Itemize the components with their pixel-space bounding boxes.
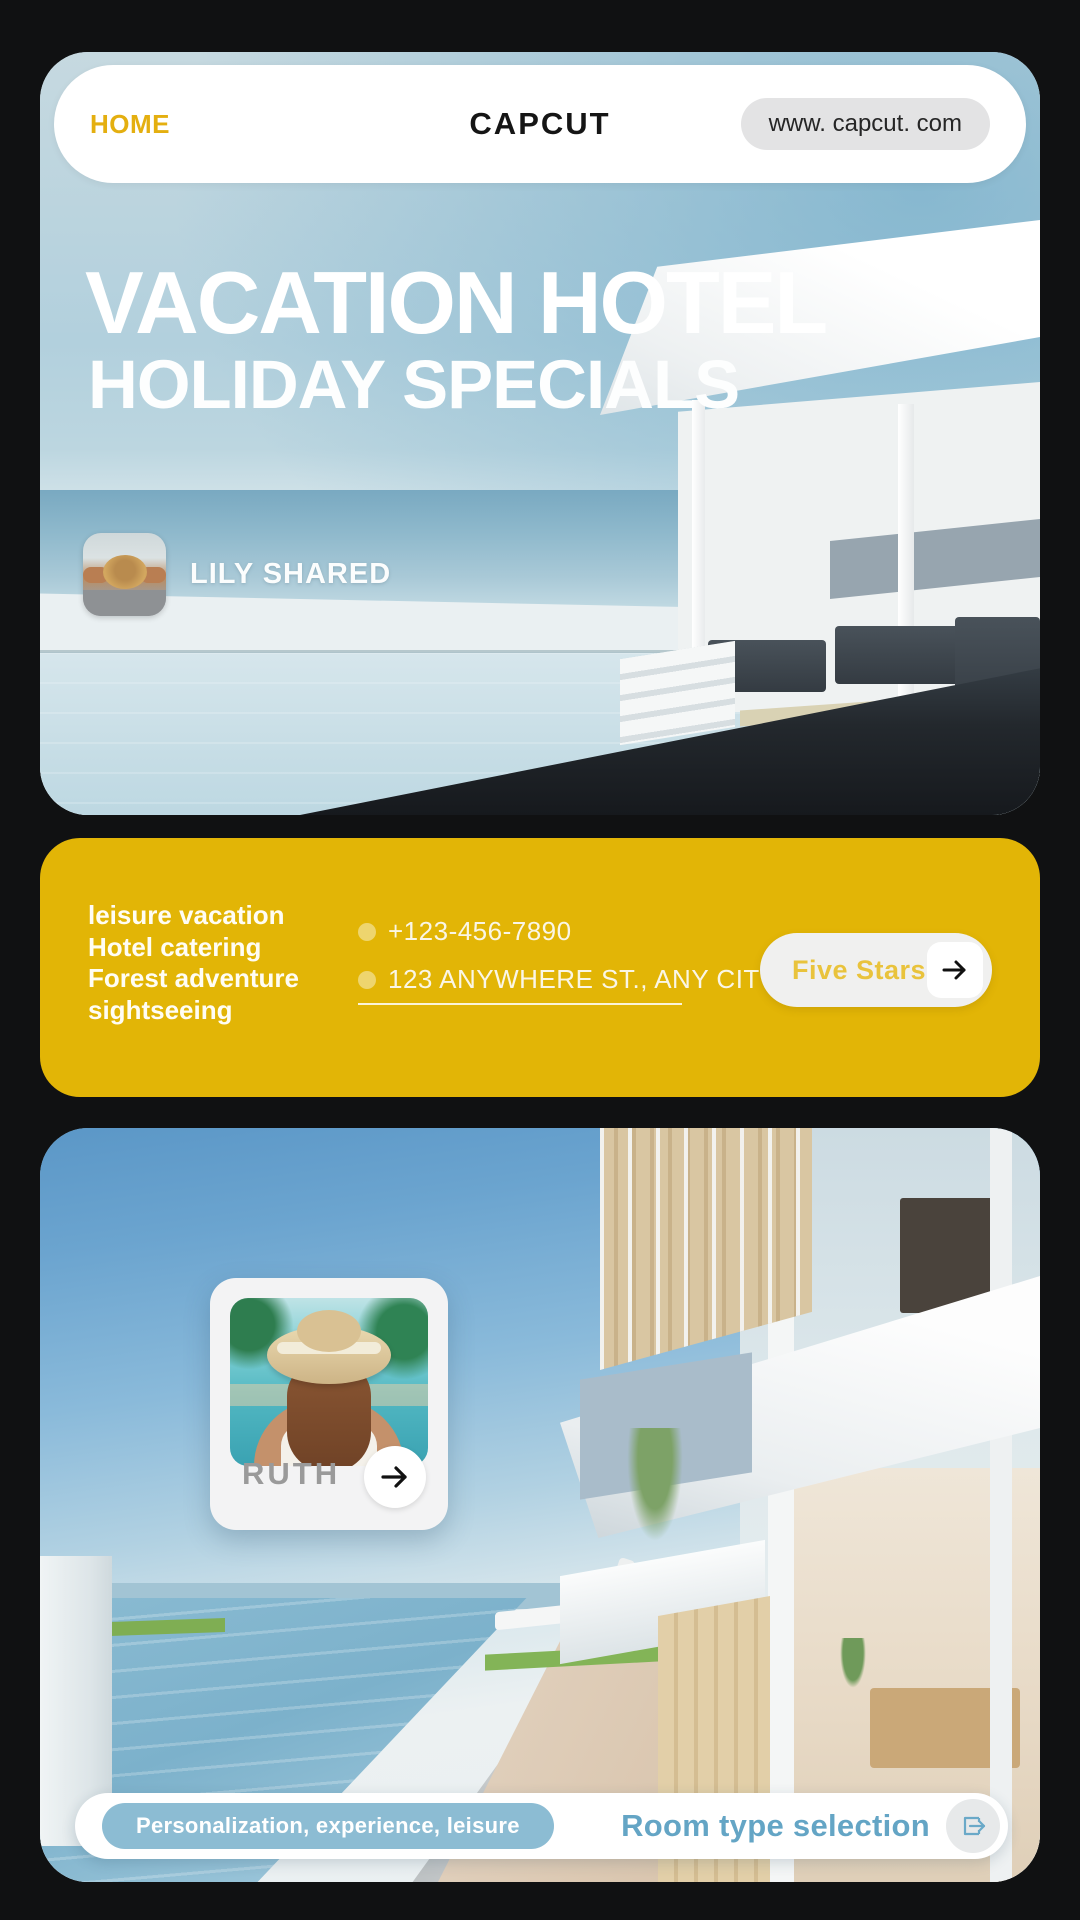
shared-by-label: LILY SHARED [190, 558, 391, 591]
room-type-selection-link[interactable]: Room type selection [621, 1808, 930, 1844]
url-pill[interactable]: www. capcut. com [741, 98, 990, 150]
profile-card-ruth[interactable]: RUTH [210, 1278, 448, 1530]
pool-steps [620, 641, 735, 745]
profile-photo [230, 1298, 428, 1466]
patio-tree [625, 1428, 685, 1548]
room-card: RUTH Personalization, experience, leisur… [40, 1128, 1040, 1882]
shared-by-row: LILY SHARED [83, 533, 391, 616]
bullet-dot-icon [358, 923, 376, 941]
phone-row: +123-456-7890 [358, 916, 572, 947]
service-item: leisure vacation [88, 900, 299, 932]
hero-card: HOME CAPCUT www. capcut. com VACATION HO… [40, 52, 1040, 815]
address-row: 123 ANYWHERE ST., ANY CITY [358, 964, 778, 995]
straw-hat-icon [103, 555, 147, 589]
hero-title-line1: VACATION HOTEL [85, 252, 826, 354]
five-stars-button[interactable]: Five Stars [760, 933, 992, 1007]
info-card: leisure vacation Hotel catering Forest a… [40, 838, 1040, 1097]
exit-arrow-icon [957, 1810, 989, 1842]
arrow-right-icon [378, 1460, 412, 1494]
avatar [83, 533, 166, 616]
page-canvas: HOME CAPCUT www. capcut. com VACATION HO… [0, 0, 1080, 1920]
tag-badge: Personalization, experience, leisure [102, 1803, 554, 1849]
door-frame [990, 1128, 1012, 1882]
nav-home-link[interactable]: HOME [90, 109, 170, 140]
hero-title-line2: HOLIDAY SPECIALS [88, 345, 739, 424]
phone-number: +123-456-7890 [388, 916, 572, 947]
header-bar: HOME CAPCUT www. capcut. com [54, 65, 1026, 183]
avatar-detail [83, 590, 166, 616]
services-list: leisure vacation Hotel catering Forest a… [88, 900, 299, 1026]
service-item: sightseeing [88, 995, 299, 1027]
footer-bar: Personalization, experience, leisure Roo… [75, 1793, 1008, 1859]
bullet-dot-icon [358, 971, 376, 989]
service-item: Hotel catering [88, 932, 299, 964]
address-underline [358, 1003, 682, 1005]
house-plant [840, 1638, 866, 1688]
hat-crown [297, 1310, 361, 1352]
enter-room-button[interactable] [946, 1799, 1000, 1853]
brand-title: CAPCUT [469, 106, 610, 142]
profile-arrow-button[interactable] [364, 1446, 426, 1508]
five-stars-label: Five Stars [792, 955, 927, 986]
address-text: 123 ANYWHERE ST., ANY CITY [388, 964, 778, 995]
profile-name: RUTH [242, 1456, 340, 1492]
service-item: Forest adventure [88, 963, 299, 995]
arrow-right-icon [927, 942, 983, 998]
